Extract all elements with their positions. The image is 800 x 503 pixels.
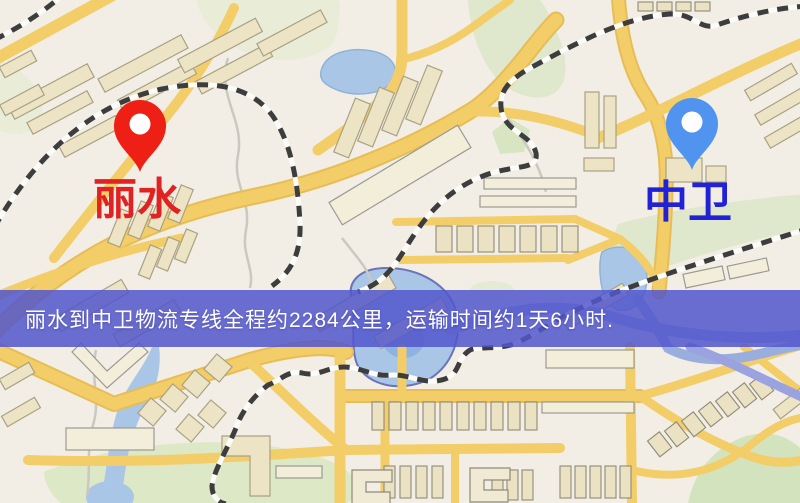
info-banner: 丽水到中卫物流专线全程约2284公里，运输时间约1天6小时. — [0, 290, 800, 347]
origin-pin-dot — [130, 114, 151, 135]
info-banner-text: 丽水到中卫物流专线全程约2284公里，运输时间约1天6小时. — [25, 304, 614, 334]
destination-label: 中卫 — [644, 178, 732, 227]
map-canvas: 丽水 中卫 — [0, 0, 800, 503]
destination-pin-dot — [682, 112, 703, 133]
origin-label: 丽水 — [93, 175, 182, 224]
